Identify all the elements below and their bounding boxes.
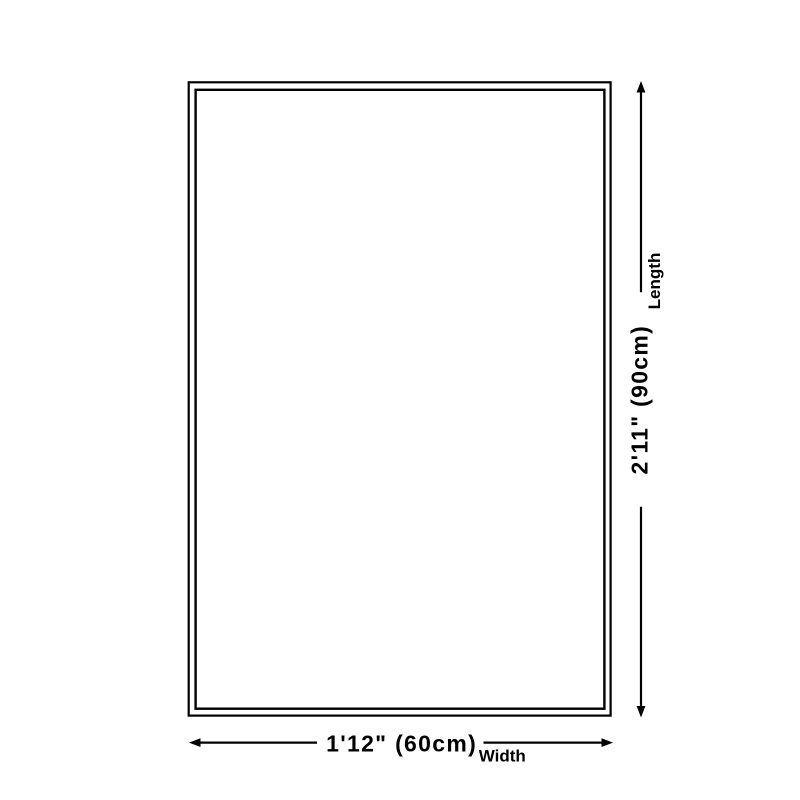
- svg-text:Width: Width: [479, 746, 526, 765]
- svg-text:Length: Length: [645, 253, 664, 310]
- svg-text:1'12" (60cm): 1'12" (60cm): [326, 731, 477, 757]
- svg-text:2'11" (90cm): 2'11" (90cm): [626, 325, 652, 475]
